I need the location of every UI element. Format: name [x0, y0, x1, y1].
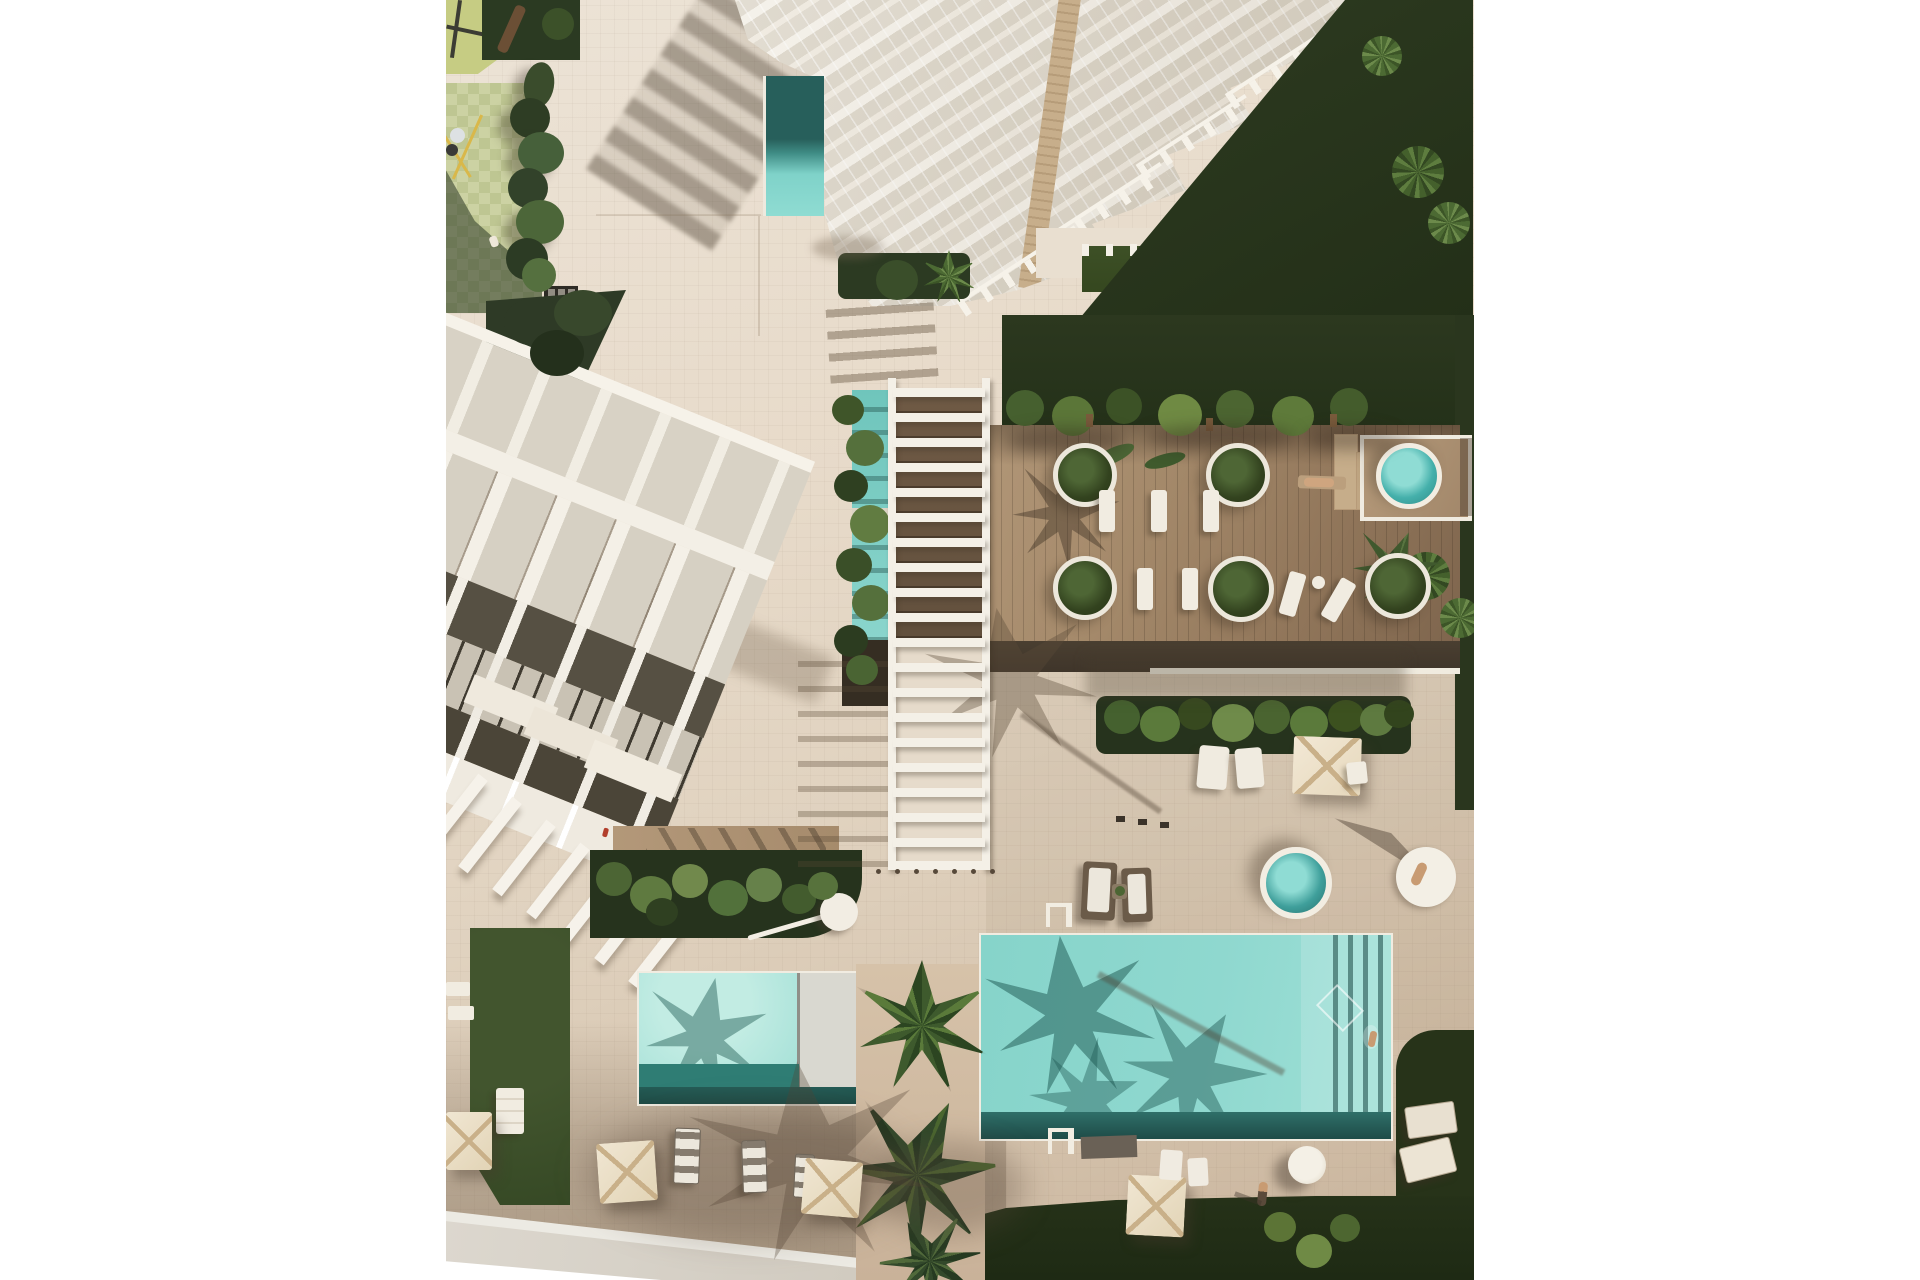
grass-patch: [470, 928, 570, 1205]
pergola-cap: [888, 861, 990, 870]
pergola-slat: [893, 438, 985, 447]
small-pool: [637, 971, 860, 1106]
pergola-slat: [893, 763, 985, 772]
pergola-slat: [893, 463, 985, 472]
pergola-slat: [893, 638, 985, 647]
pergola-slat: [893, 538, 985, 547]
pergola-slat: [893, 813, 985, 822]
pergola-slat: [893, 738, 985, 747]
round-daybed: [820, 893, 858, 931]
hedge-south: [1096, 696, 1411, 754]
pergola-slat: [893, 413, 985, 422]
tower-pool: [763, 76, 824, 216]
aerial-render: [446, 0, 1474, 1280]
paving-joint: [596, 214, 761, 216]
pool-tanning-ledge: [797, 973, 860, 1104]
pool-rim: [981, 1112, 1391, 1139]
garden-band: [1002, 315, 1473, 428]
tree-canopy: [542, 8, 574, 40]
pergola-slat: [893, 663, 985, 672]
pergola-shadow-north: [825, 300, 938, 383]
palm-island: [856, 964, 985, 1280]
main-pool: [979, 933, 1393, 1141]
pergola-slat: [893, 563, 985, 572]
pergola-slat: [893, 713, 985, 722]
pergola-rail: [888, 378, 896, 870]
pool-rim: [639, 1087, 858, 1104]
pergola-slat: [893, 613, 985, 622]
render-canvas: [0, 0, 1920, 1280]
paving-joint: [758, 216, 760, 336]
pergola: [888, 378, 990, 870]
garden-corner: [1396, 1030, 1474, 1200]
pergola-shadow-west: [798, 642, 892, 867]
post-shadow: [1378, 935, 1383, 1115]
deck-steps: [1334, 434, 1358, 510]
pergola-rail: [982, 378, 990, 870]
pergola-slat: [893, 388, 985, 397]
pergola-slat: [893, 513, 985, 522]
deck-walkway-edge: [1150, 668, 1460, 674]
pergola-slat: [893, 488, 985, 497]
pergola-slat: [893, 788, 985, 797]
tire-swing: [446, 144, 458, 156]
swing-canopy: [450, 128, 465, 143]
pergola-slats-layer: [888, 378, 990, 870]
pergola-slat: [893, 588, 985, 597]
shrub-bed: [838, 253, 970, 299]
pergola-slat: [893, 688, 985, 697]
pergola-slat: [893, 838, 985, 847]
spa-pool: [1376, 443, 1442, 509]
